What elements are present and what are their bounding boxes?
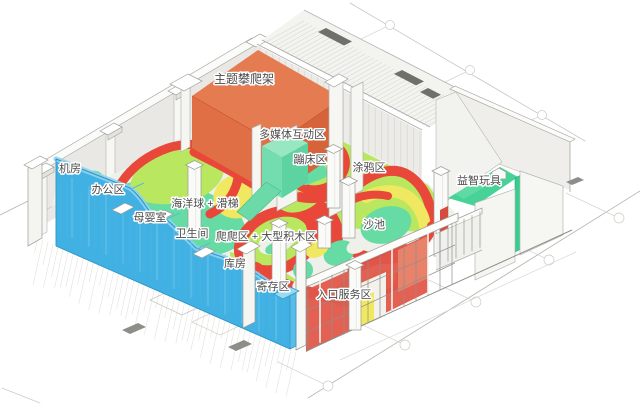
svg-text:卫生间: 卫生间 (176, 226, 209, 240)
svg-text:沙池: 沙池 (363, 218, 385, 231)
svg-text:机房: 机房 (59, 161, 81, 175)
svg-text:多媒体互动区: 多媒体互动区 (259, 127, 325, 141)
svg-text:海洋球 + 滑梯: 海洋球 + 滑梯 (171, 196, 239, 210)
svg-text:爬爬区 + 大型积木区: 爬爬区 + 大型积木区 (216, 229, 317, 243)
svg-text:母婴室: 母婴室 (134, 210, 167, 224)
svg-text:主题攀爬架: 主题攀爬架 (214, 72, 274, 86)
svg-text:入口服务区: 入口服务区 (317, 288, 372, 301)
svg-text:寄存区: 寄存区 (257, 279, 290, 293)
svg-text:涂鸦区: 涂鸦区 (353, 160, 386, 174)
svg-text:库房: 库房 (224, 257, 246, 270)
svg-text:益智玩具: 益智玩具 (457, 173, 501, 187)
svg-text:办公区: 办公区 (92, 183, 125, 196)
svg-text:蹦床区: 蹦床区 (294, 152, 327, 166)
